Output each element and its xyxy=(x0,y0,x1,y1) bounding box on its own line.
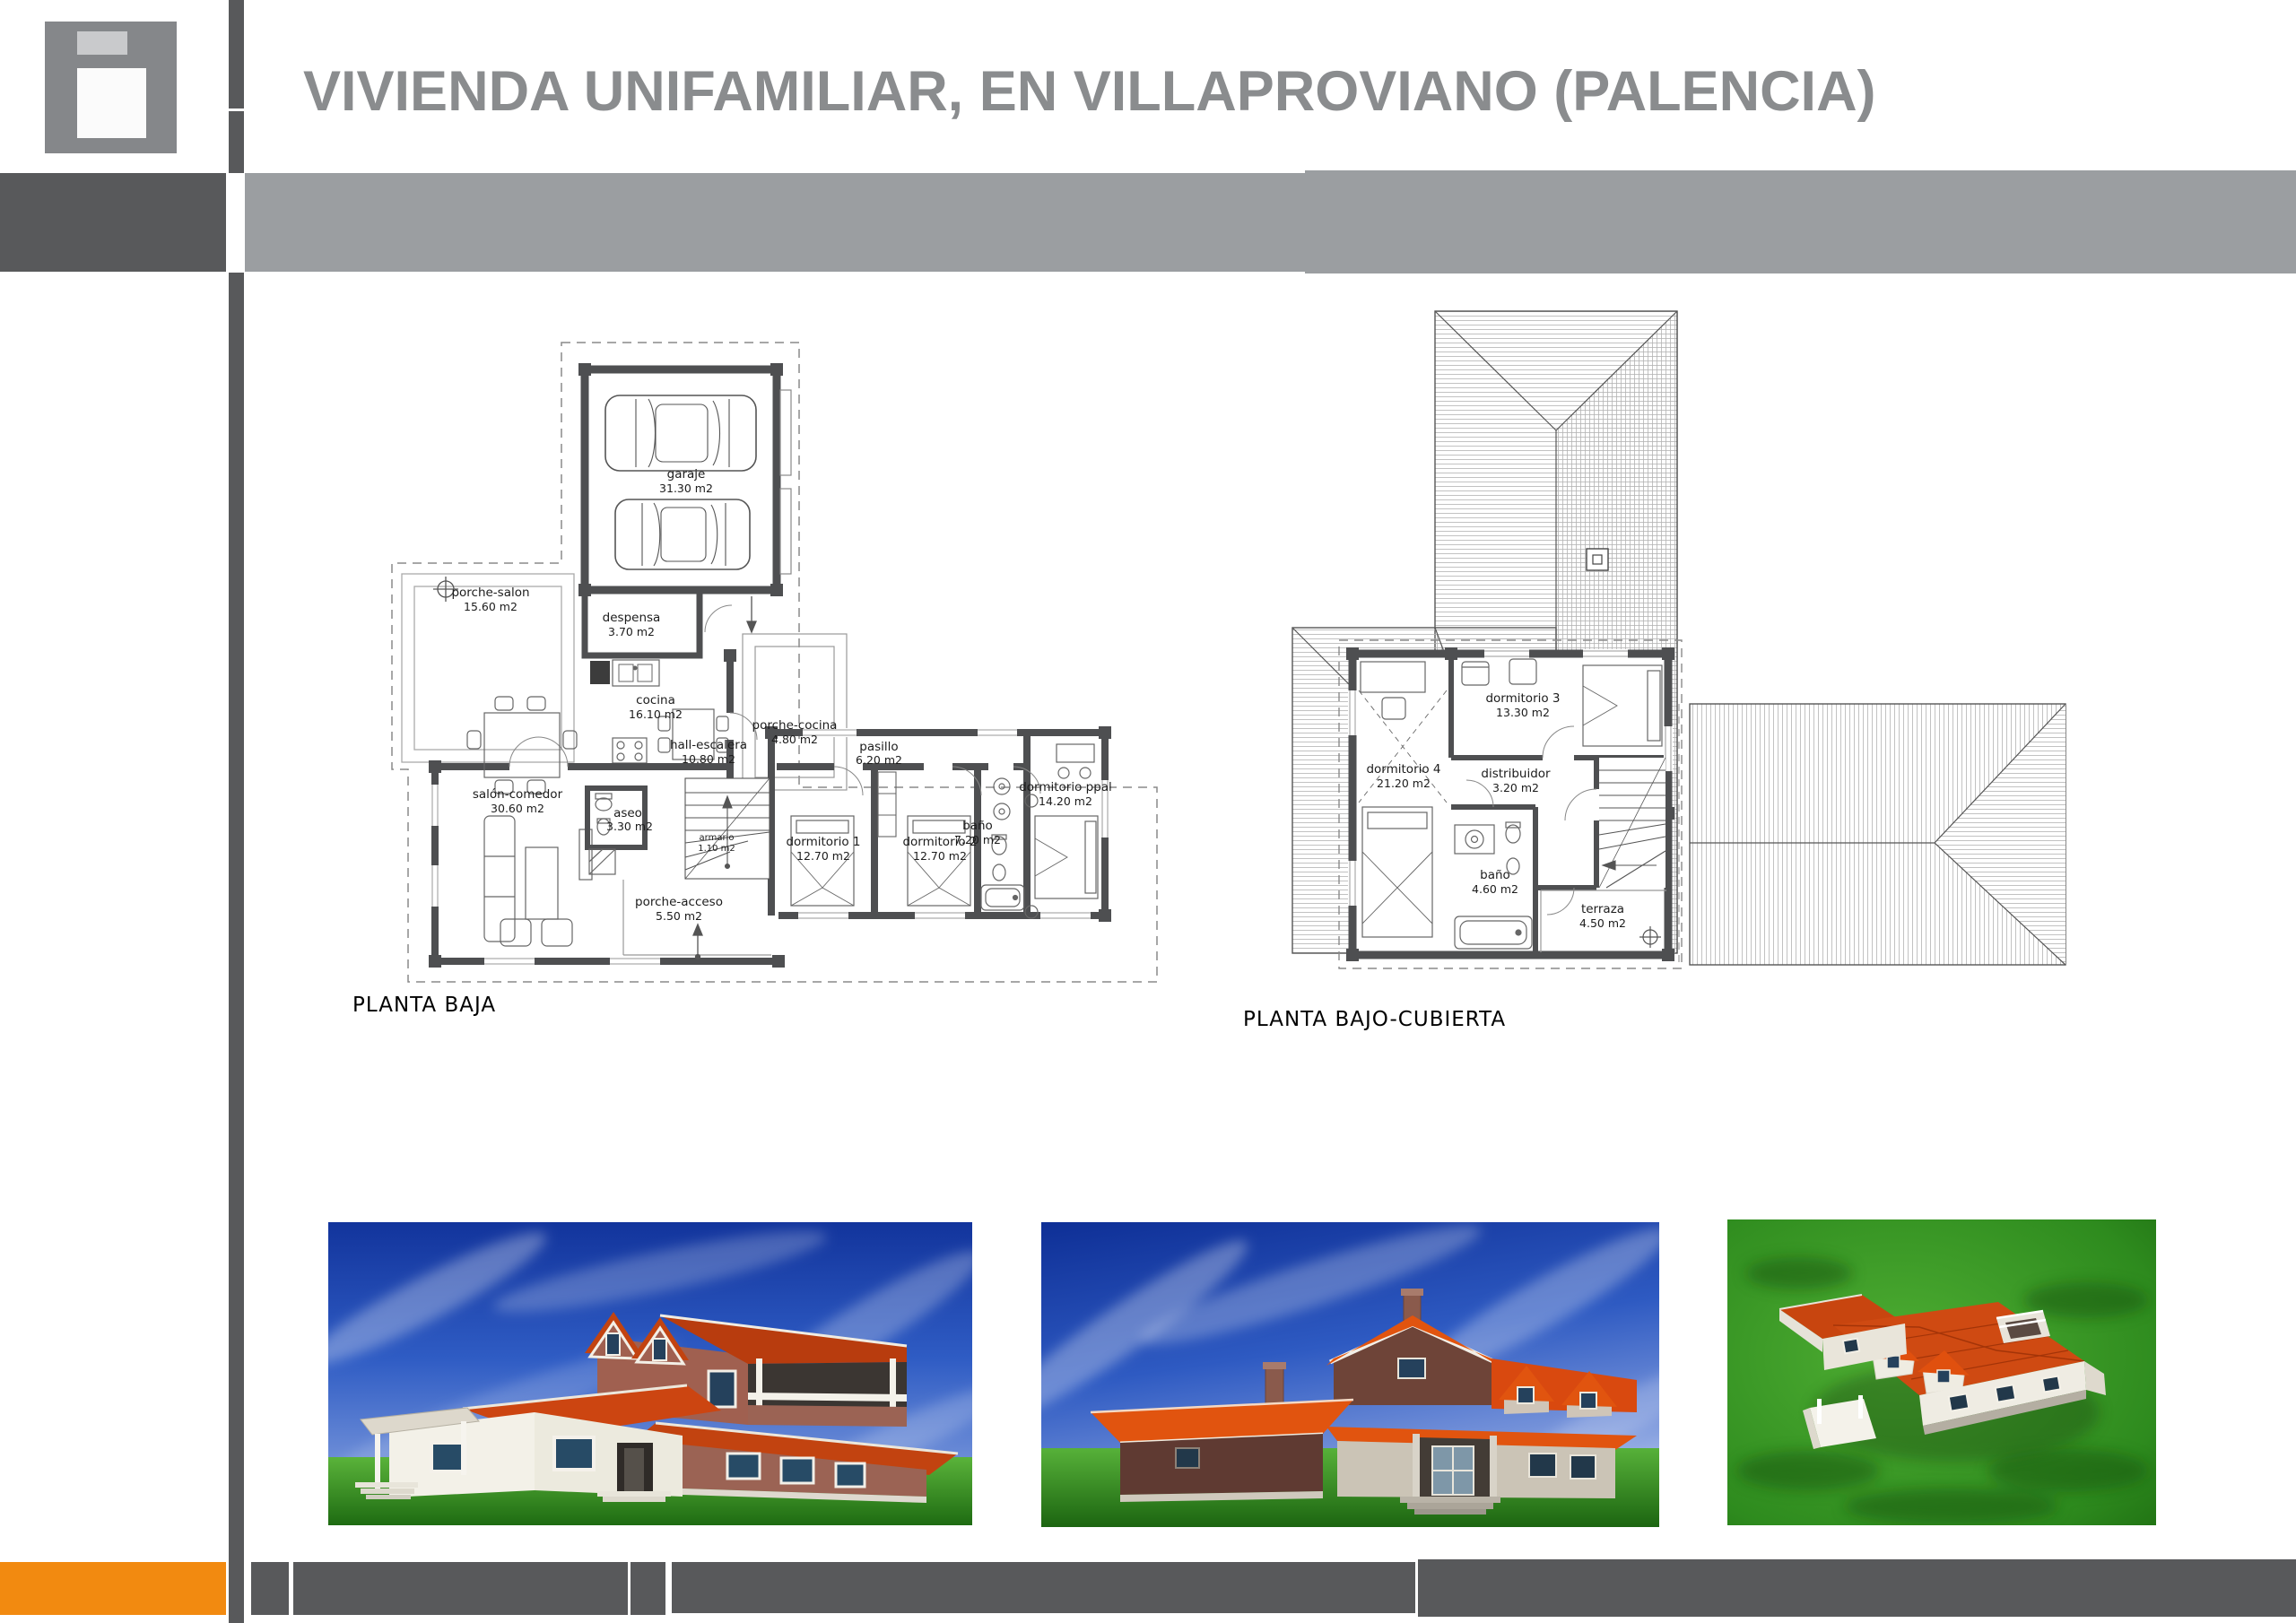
company-logo-icon xyxy=(45,22,177,153)
room-area-bano: 7.20 m2 xyxy=(954,833,1001,846)
room-label-porche-acceso: porche-acceso xyxy=(635,895,723,909)
plan2-staircase xyxy=(1599,758,1665,888)
room-area-dormitorio-1: 12.70 m2 xyxy=(796,849,850,863)
entry-arrow xyxy=(693,924,702,959)
footer-gray-bar-3 xyxy=(1418,1559,2296,1617)
logo-inner-top xyxy=(77,31,127,55)
kitchen-counter-sink xyxy=(590,660,659,686)
room-area-garaje: 31.30 m2 xyxy=(659,482,713,495)
vertical-divider-mid xyxy=(229,111,244,173)
room-area-despensa: 3.70 m2 xyxy=(608,625,655,638)
footer-gray-square-2 xyxy=(631,1562,665,1615)
car-top-view-2 xyxy=(615,499,750,569)
sofa-set xyxy=(484,816,592,946)
car-top-view-1 xyxy=(605,395,756,471)
room-area-cocina: 16.10 m2 xyxy=(629,707,683,721)
bed-dorm-ppal xyxy=(1025,744,1098,918)
floor-plan-planta-bajo-cubierta: dormitorio 3 13.30 m2 dormitorio 4 21.20… xyxy=(1287,305,2094,986)
room-label-armario: armario xyxy=(700,833,735,843)
room-label-salon-comedor: salón-comedor xyxy=(473,787,563,802)
room-label-cocina: cocina xyxy=(636,693,675,707)
caption-planta-baja: PLANTA BAJA xyxy=(352,994,496,1017)
render-exterior-aerial xyxy=(1727,1219,2156,1525)
footer-gray-bar-2 xyxy=(672,1562,1415,1613)
room-area-dormitorio-2: 12.70 m2 xyxy=(913,849,967,863)
header-band-light-right xyxy=(1305,170,2296,273)
room-area-dormitorio-ppal: 14.20 m2 xyxy=(1039,794,1092,808)
room-label-aseo: aseo xyxy=(613,806,642,820)
room-label-bano: baño xyxy=(962,819,993,833)
room-label-porche-salon: porche-salon xyxy=(451,586,529,600)
stair-down-arrow xyxy=(747,596,756,632)
room-label-dormitorio-1: dormitorio 1 xyxy=(786,835,860,849)
footer-accent-orange-bar xyxy=(0,1562,226,1615)
garage-doors xyxy=(780,390,791,574)
room-area-bano-2: 4.60 m2 xyxy=(1472,882,1518,896)
room-label-pasillo: pasillo xyxy=(859,740,898,754)
header-band-dark xyxy=(0,173,226,272)
room-area-aseo: 3.30 m2 xyxy=(606,820,653,833)
room-area-porche-cocina: 4.80 m2 xyxy=(771,733,818,746)
page-title: VIVIENDA UNIFAMILIAR, EN VILLAPROVIANO (… xyxy=(303,59,1876,124)
render-exterior-front xyxy=(328,1222,972,1525)
room-label-distribuidor: distribuidor xyxy=(1481,767,1551,781)
room-area-hall-escalera: 10.80 m2 xyxy=(682,752,735,766)
room-area-porche-acceso: 5.50 m2 xyxy=(656,909,702,923)
room-label-dormitorio-3: dormitorio 3 xyxy=(1485,691,1560,706)
caption-planta-bajo-cubierta: PLANTA BAJO-CUBIERTA xyxy=(1243,1008,1506,1031)
room-label-despensa: despensa xyxy=(603,611,661,625)
room-area-dormitorio-3: 13.30 m2 xyxy=(1496,706,1550,719)
room-label-dormitorio-4: dormitorio 4 xyxy=(1366,762,1440,777)
room-area-porche-salon: 15.60 m2 xyxy=(464,600,517,613)
floor-plan-planta-baja: garaje 31.30 m2 porche-salon 15.60 m2 de… xyxy=(350,327,1175,1027)
room-area-salon-comedor: 30.60 m2 xyxy=(491,802,544,815)
room-label-terraza: terraza xyxy=(1581,902,1624,916)
room-area-armario: 1.10 m2 xyxy=(698,844,735,854)
room-label-garaje: garaje xyxy=(667,467,706,482)
stove-icon xyxy=(613,738,647,763)
room-label-bano-2: baño xyxy=(1480,868,1510,882)
vertical-divider-top xyxy=(229,0,244,108)
room-label-porche-cocina: porche-cocina xyxy=(752,718,838,733)
room-label-dormitorio-ppal: dormitorio ppal xyxy=(1019,780,1112,794)
slide-page: VIVIENDA UNIFAMILIAR, EN VILLAPROVIANO (… xyxy=(0,0,2296,1623)
dining-table-chairs xyxy=(467,697,577,794)
room-area-terraza: 4.50 m2 xyxy=(1579,916,1626,930)
room-area-dormitorio-4: 21.20 m2 xyxy=(1377,777,1431,790)
door-arc xyxy=(705,605,732,632)
room-label-hall-escalera: hall-escalera xyxy=(670,738,747,752)
staircase xyxy=(685,778,770,879)
header-band-light xyxy=(245,173,1305,272)
footer-gray-square-1 xyxy=(251,1562,289,1615)
room-area-pasillo: 6.20 m2 xyxy=(856,753,902,767)
roof-block-east xyxy=(1679,704,2066,965)
bedroom-closets xyxy=(878,772,896,837)
footer-gray-bar-1 xyxy=(293,1562,628,1615)
chimney-icon xyxy=(1587,549,1608,570)
vertical-divider-main xyxy=(229,273,244,1623)
render-exterior-rear xyxy=(1041,1222,1659,1527)
logo-inner-bottom xyxy=(77,68,146,138)
room-area-distribuidor: 3.20 m2 xyxy=(1492,781,1539,794)
aseo-fixtures xyxy=(589,794,615,874)
